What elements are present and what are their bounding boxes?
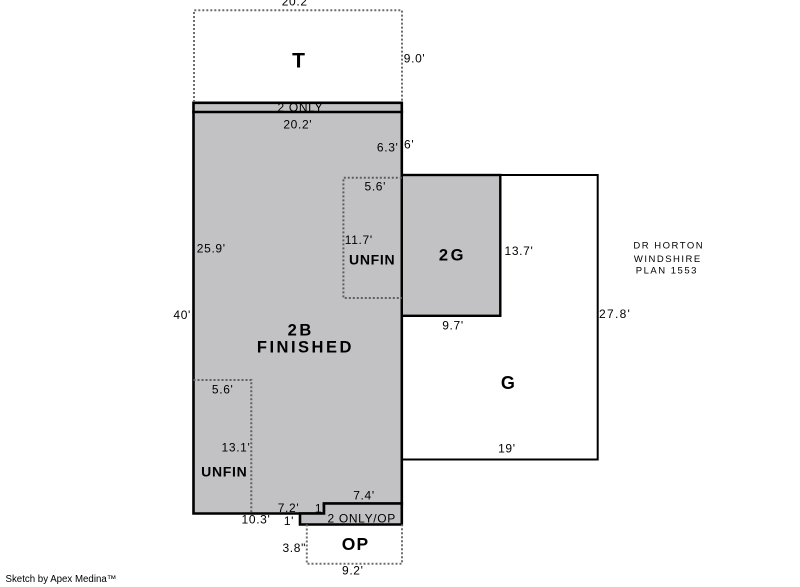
svg-text:5.6': 5.6' [365, 180, 387, 194]
svg-text:FINISHED: FINISHED [257, 339, 354, 357]
svg-text:10.3': 10.3' [242, 513, 271, 527]
svg-text:9.2': 9.2' [342, 564, 364, 578]
svg-text:2G: 2G [439, 246, 466, 264]
svg-text:3.8": 3.8" [282, 541, 306, 555]
svg-text:2 ONLY/OP: 2 ONLY/OP [328, 512, 396, 526]
svg-text:1': 1' [315, 502, 325, 516]
svg-text:9.7': 9.7' [442, 318, 464, 332]
svg-text:Sketch by Apex Medina™: Sketch by Apex Medina™ [6, 574, 117, 585]
svg-text:40': 40' [173, 308, 191, 322]
svg-text:6': 6' [404, 137, 414, 151]
svg-text:27.8': 27.8' [599, 307, 631, 321]
svg-text:1': 1' [284, 514, 294, 528]
svg-text:13.1': 13.1' [222, 441, 251, 455]
svg-text:7.2': 7.2' [278, 501, 300, 515]
svg-text:7.4': 7.4' [353, 489, 375, 503]
svg-text:11.7': 11.7' [345, 233, 373, 247]
svg-text:2B: 2B [288, 322, 314, 340]
svg-text:2 ONLY: 2 ONLY [278, 100, 324, 114]
svg-text:25.9': 25.9' [197, 242, 226, 256]
svg-text:9.0': 9.0' [404, 52, 426, 66]
svg-text:13.7': 13.7' [505, 244, 534, 258]
svg-text:5.6': 5.6' [212, 383, 234, 397]
svg-text:UNFIN: UNFIN [201, 464, 247, 480]
svg-text:19': 19' [498, 442, 516, 456]
svg-text:UNFIN: UNFIN [349, 252, 395, 268]
svg-text:DR HORTON: DR HORTON [633, 241, 704, 252]
svg-text:6.3': 6.3' [377, 141, 399, 155]
svg-text:G: G [501, 373, 515, 393]
svg-text:PLAN 1553: PLAN 1553 [636, 266, 698, 277]
svg-text:20.2': 20.2' [282, 0, 311, 8]
svg-text:T: T [292, 50, 305, 73]
svg-text:20.2': 20.2' [283, 117, 312, 131]
svg-text:WINDSHIRE: WINDSHIRE [634, 254, 702, 265]
svg-text:OP: OP [342, 534, 370, 554]
